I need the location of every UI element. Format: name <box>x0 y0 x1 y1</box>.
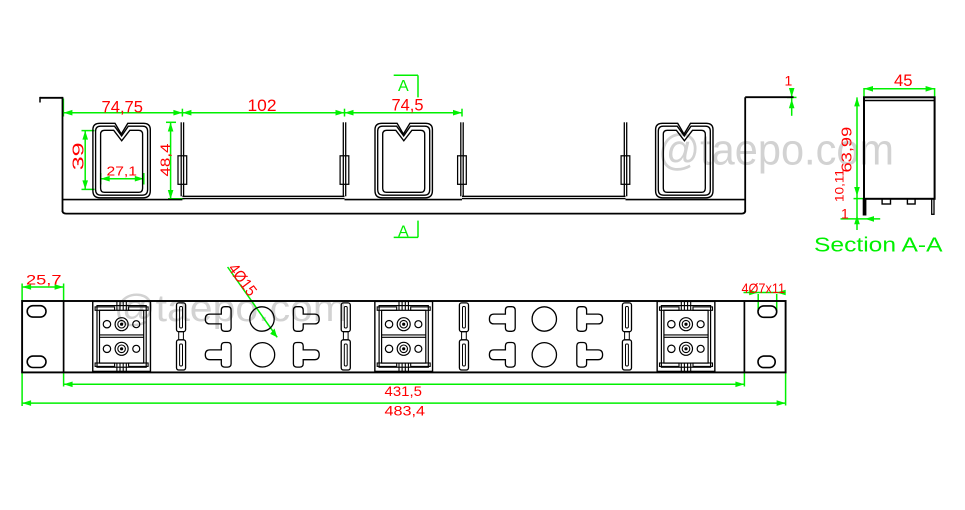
svg-text:102: 102 <box>248 96 277 115</box>
svg-text:1: 1 <box>785 73 793 89</box>
svg-text:74,5: 74,5 <box>392 96 424 115</box>
svg-text:A: A <box>398 78 409 95</box>
svg-text:1: 1 <box>841 206 849 222</box>
svg-text:483,4: 483,4 <box>385 403 426 418</box>
svg-text:@taepo.com: @taepo.com <box>658 126 894 175</box>
svg-text:25,7: 25,7 <box>26 272 62 288</box>
svg-text:Section A-A: Section A-A <box>814 235 943 257</box>
svg-text:10,11: 10,11 <box>835 169 847 202</box>
svg-text:4Ø7x11: 4Ø7x11 <box>742 280 786 296</box>
svg-text:63,99: 63,99 <box>839 127 856 173</box>
svg-text:45: 45 <box>894 71 913 90</box>
svg-text:431,5: 431,5 <box>385 384 423 399</box>
svg-text:74,75: 74,75 <box>102 97 144 116</box>
svg-text:27,1: 27,1 <box>107 165 138 179</box>
svg-text:A: A <box>398 224 409 241</box>
svg-text:39: 39 <box>71 142 88 170</box>
svg-text:48,4: 48,4 <box>158 143 173 177</box>
